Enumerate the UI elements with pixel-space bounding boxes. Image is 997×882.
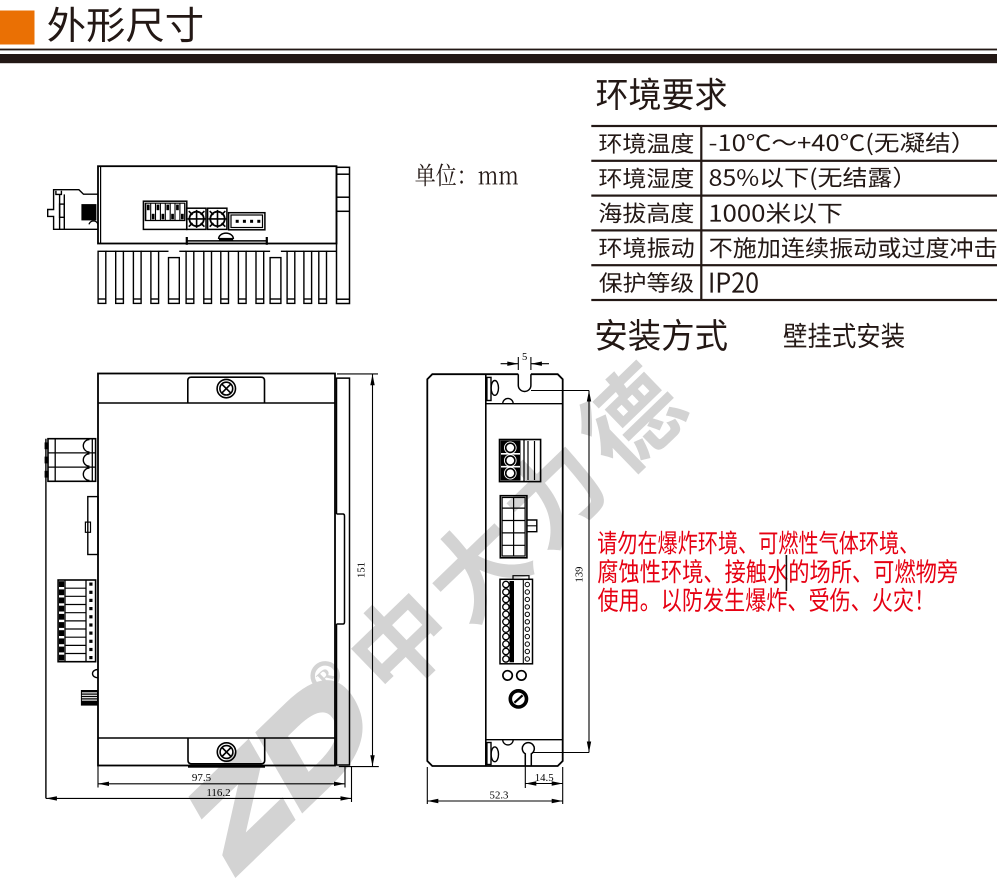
svg-text:52.3: 52.3	[490, 789, 509, 801]
svg-text:5: 5	[522, 352, 527, 363]
svg-text:97.5: 97.5	[192, 772, 212, 784]
svg-text:139: 139	[575, 567, 586, 583]
svg-text:151: 151	[357, 562, 368, 578]
svg-text:14.5: 14.5	[535, 772, 554, 784]
svg-text:116.2: 116.2	[206, 787, 230, 799]
